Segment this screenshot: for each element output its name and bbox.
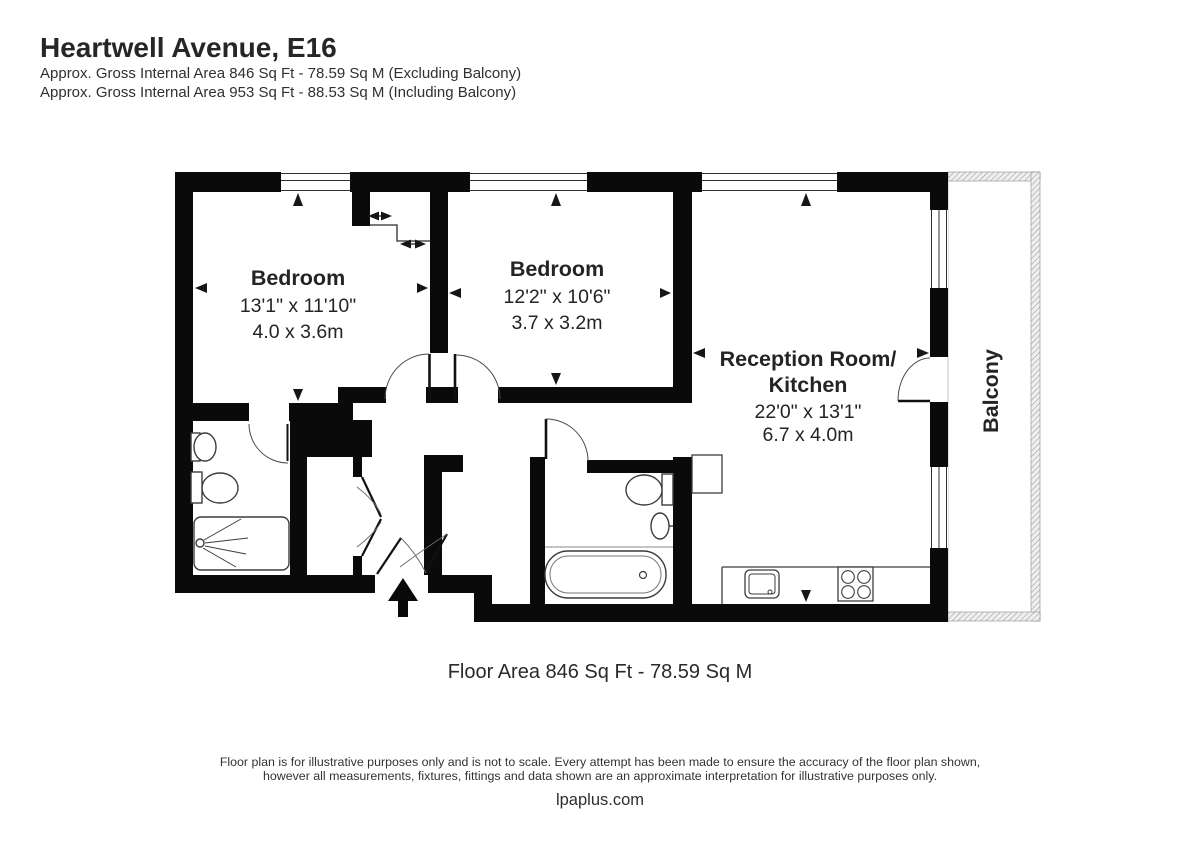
arrow-bed1-down — [293, 389, 303, 401]
arrow-bed1-up — [293, 193, 303, 206]
balcony-door — [898, 358, 930, 401]
balcony-label: Balcony — [979, 349, 1003, 433]
closet-bifold-doors — [357, 477, 381, 556]
kitchen-fixtures — [692, 455, 930, 604]
arrow-reception-left — [693, 348, 705, 358]
window-bedroom2 — [470, 172, 587, 192]
window-balcony-lower — [930, 467, 948, 548]
bedroom2-imperial: 12'2" x 10'6" — [504, 286, 611, 308]
disclaimer-line2: however all measurements, fixtures, fitt… — [0, 769, 1200, 783]
window-reception-top — [702, 172, 837, 192]
bedroom2-label: Bedroom 12'2" x 10'6" 3.7 x 3.2m — [504, 257, 611, 334]
arrow-reception-up — [801, 193, 811, 206]
balcony-border-bottom — [948, 612, 1040, 621]
balcony-border-right — [1031, 172, 1040, 621]
ensuite-toilet — [191, 472, 238, 503]
ensuite-basin — [191, 433, 216, 461]
kitchen-sink — [745, 570, 779, 598]
floorplan-page: Heartwell Avenue, E16 Approx. Gross Inte… — [0, 0, 1200, 848]
ensuite-shower — [194, 517, 289, 570]
bathroom-door — [546, 419, 588, 461]
ensuite-fixtures — [191, 433, 289, 570]
entrance-arrow-icon — [388, 578, 418, 617]
bedroom1-door — [385, 354, 430, 399]
bedroom1-name: Bedroom — [251, 266, 345, 290]
bedroom1-metric: 4.0 x 3.6m — [252, 321, 343, 343]
window-balcony-upper — [930, 210, 948, 288]
floor-area-label: Floor Area 846 Sq Ft - 78.59 Sq M — [0, 661, 1200, 684]
bedroom2-door — [455, 354, 500, 399]
arrow-bed2-left — [449, 288, 461, 298]
disclaimer-line1: Floor plan is for illustrative purposes … — [0, 755, 1200, 769]
niche-detail — [368, 212, 430, 249]
bathroom-fixtures — [545, 474, 673, 598]
reception-label: Reception Room/ Kitchen 22'0" x 13'1" 6.… — [720, 347, 897, 446]
kitchen-hob — [838, 567, 873, 601]
bedroom2-name: Bedroom — [510, 257, 604, 281]
reception-imperial: 22'0" x 13'1" — [755, 401, 862, 423]
reception-name-line1: Reception Room/ — [720, 347, 897, 371]
balcony-area: Balcony — [948, 172, 1040, 621]
bathroom-basin — [651, 513, 673, 539]
reception-metric: 6.7 x 4.0m — [762, 424, 853, 446]
window-bedroom1 — [281, 172, 350, 192]
bedroom1-label: Bedroom 13'1" x 11'10" 4.0 x 3.6m — [240, 266, 356, 343]
kitchen-unit — [692, 455, 722, 493]
website-link: lpaplus.com — [0, 791, 1200, 810]
footer: Floor plan is for illustrative purposes … — [0, 755, 1200, 810]
bedroom1-imperial: 13'1" x 11'10" — [240, 295, 356, 317]
arrow-reception-down — [801, 590, 811, 602]
arrow-bed1-left — [195, 283, 207, 293]
arrow-bed2-up — [551, 193, 561, 206]
floorplan-drawing: Balcony — [0, 0, 1200, 848]
ensuite-door — [249, 424, 288, 463]
arrow-reception-right — [917, 348, 929, 358]
bathroom-toilet — [626, 474, 673, 505]
arrow-bed2-down — [551, 373, 561, 385]
balcony-border-top — [948, 172, 1040, 181]
arrow-bed1-right — [417, 283, 428, 293]
bedroom2-metric: 3.7 x 3.2m — [511, 312, 602, 334]
reception-name-line2: Kitchen — [769, 373, 848, 397]
arrow-bed2-right — [660, 288, 671, 298]
bathtub — [545, 551, 666, 598]
